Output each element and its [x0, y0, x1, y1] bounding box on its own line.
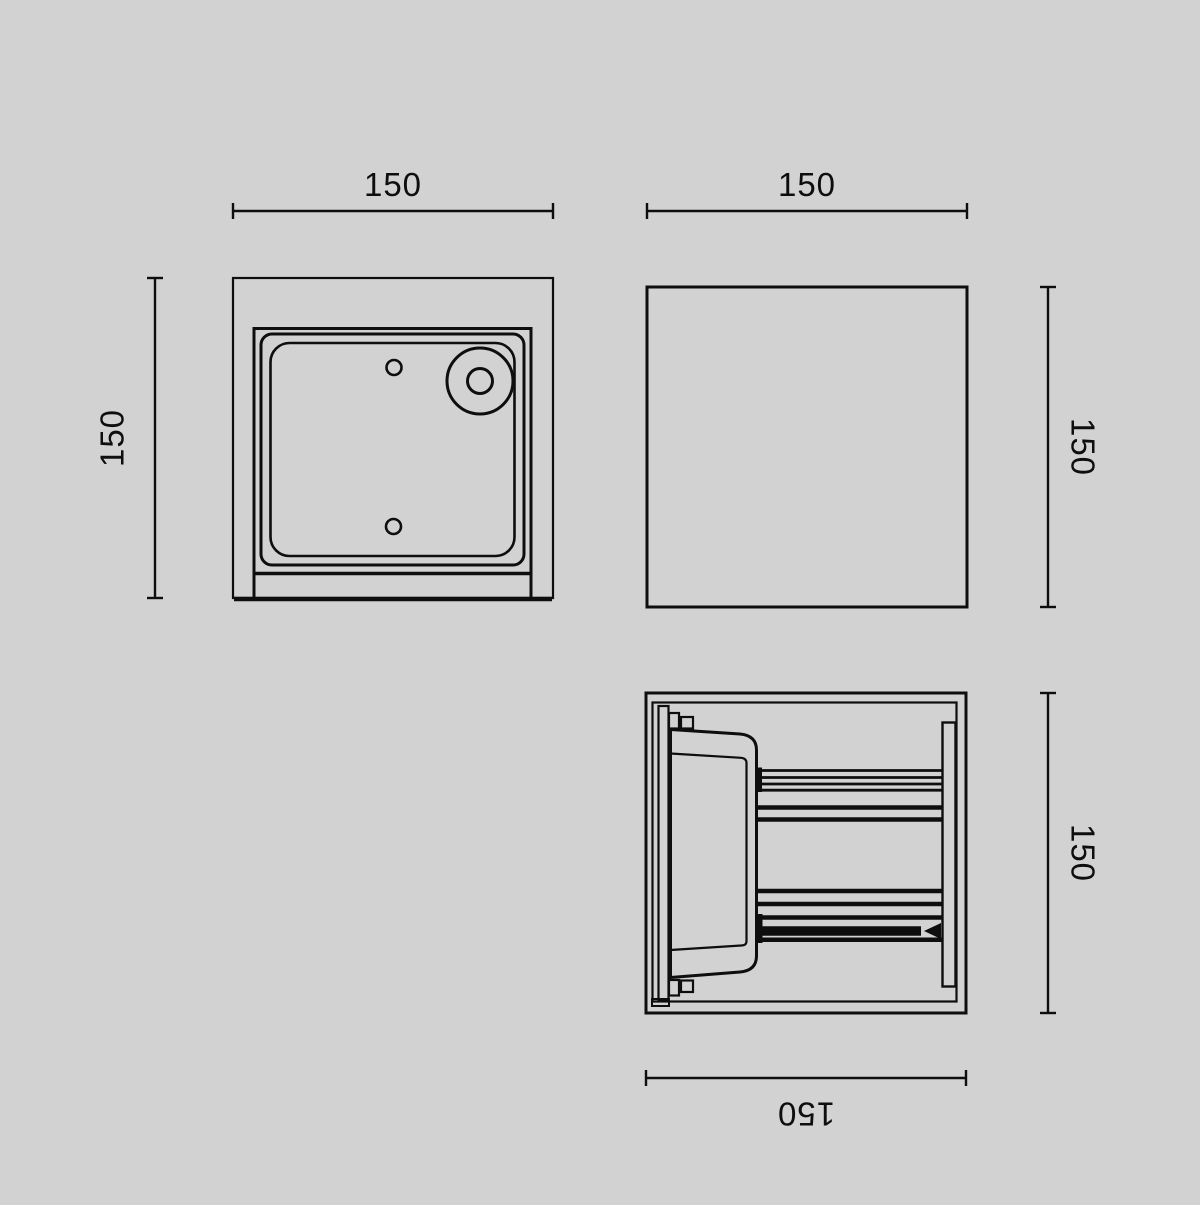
- dimension-label: 150: [1065, 418, 1102, 476]
- screw-hole-bottom: [386, 519, 401, 534]
- side-view-vertical-dimension: 150: [1040, 287, 1102, 607]
- top-view-outer-square: [646, 693, 966, 1013]
- dimension-label: 150: [364, 166, 422, 203]
- clip-top-right: [681, 717, 693, 729]
- rod-cone-tip: [924, 923, 941, 939]
- front-view-inner-frame: [254, 329, 531, 600]
- cable-gland-inner: [468, 369, 493, 394]
- front-view-outer-square: [233, 278, 553, 598]
- dimension-label: 150: [1065, 824, 1102, 882]
- top-view-vertical-dimension: 150: [1040, 693, 1102, 1013]
- top-view-horizontal-dimension: 150: [646, 1070, 966, 1133]
- clip-top-left: [669, 713, 679, 729]
- front-view-vertical-dimension: 150: [94, 278, 164, 598]
- side-view-square: [647, 287, 967, 607]
- front-view-horizontal-dimension: 150: [233, 166, 553, 219]
- clip-bottom-left: [669, 980, 679, 996]
- mounting-plate: [659, 706, 669, 1001]
- front-view: 150 150: [94, 166, 554, 599]
- clip-bottom-right: [681, 981, 693, 993]
- top-view: 150 150: [646, 693, 1102, 1133]
- dimension-label: 150: [94, 409, 131, 467]
- lamp-body-outline: [671, 730, 757, 978]
- rear-plate: [943, 723, 956, 987]
- top-view-inner-square: [653, 703, 957, 1002]
- side-view: 150 150: [647, 166, 1102, 607]
- drawing-canvas: 150 150 150: [0, 0, 1200, 1200]
- dimension-label: 150: [777, 1096, 835, 1133]
- lamp-body-inner-edge: [671, 754, 747, 951]
- side-view-horizontal-dimension: 150: [647, 166, 967, 219]
- cable-gland-outer: [447, 348, 513, 414]
- dimension-drawing: 150 150 150: [0, 0, 1200, 1200]
- screw-hole-top: [387, 360, 402, 375]
- dimension-label: 150: [778, 166, 836, 203]
